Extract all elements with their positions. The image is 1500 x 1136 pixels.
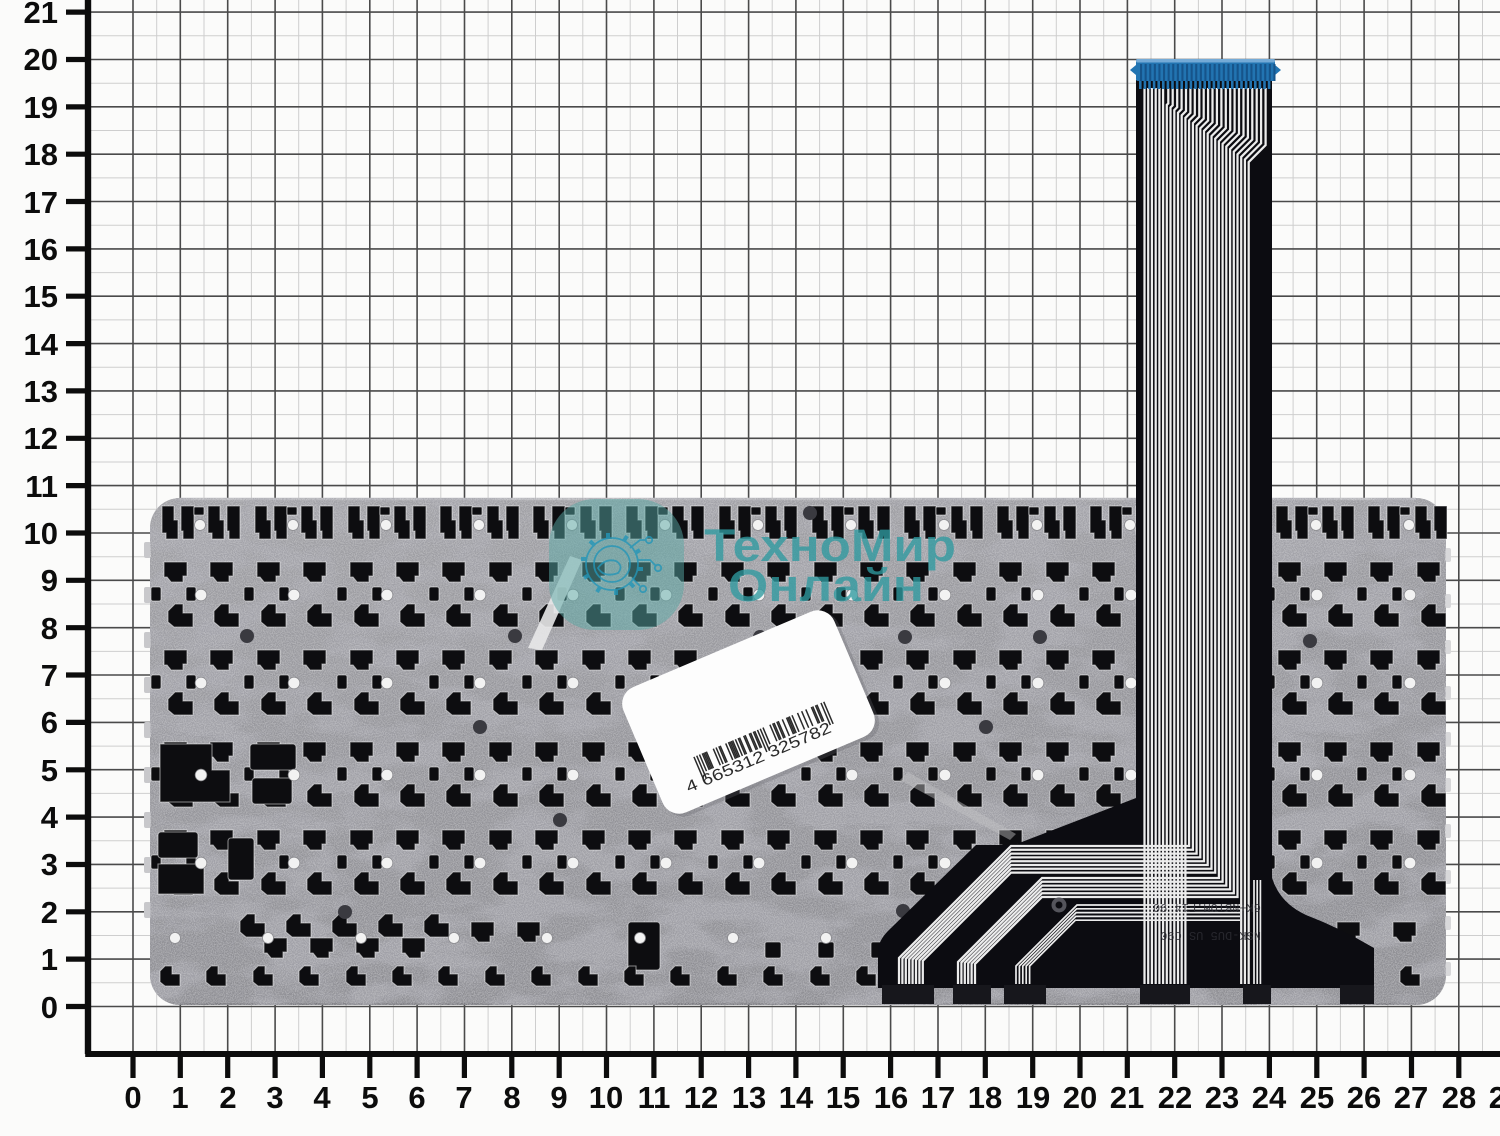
svg-text:20: 20 bbox=[24, 42, 58, 77]
svg-text:25: 25 bbox=[1300, 1080, 1334, 1115]
svg-text:18: 18 bbox=[968, 1080, 1002, 1115]
svg-text:6: 6 bbox=[408, 1080, 425, 1115]
svg-text:14: 14 bbox=[779, 1080, 814, 1115]
svg-text:6K+NBTOM.F14 90: 6K+NBTOM.F14 90 bbox=[1153, 900, 1261, 914]
svg-text:9: 9 bbox=[550, 1080, 567, 1115]
svg-text:19: 19 bbox=[1016, 1080, 1050, 1115]
svg-text:11: 11 bbox=[638, 1080, 671, 1115]
svg-text:12: 12 bbox=[684, 1080, 718, 1115]
svg-text:3: 3 bbox=[266, 1080, 283, 1115]
svg-text:10: 10 bbox=[24, 516, 58, 551]
svg-text:15: 15 bbox=[826, 1080, 860, 1115]
svg-text:2: 2 bbox=[219, 1080, 236, 1115]
svg-text:8: 8 bbox=[41, 611, 58, 646]
svg-text:24: 24 bbox=[1252, 1080, 1287, 1115]
svg-text:12: 12 bbox=[24, 421, 58, 456]
svg-text:7: 7 bbox=[41, 658, 58, 693]
svg-text:17: 17 bbox=[921, 1080, 955, 1115]
svg-text:19: 19 bbox=[24, 90, 58, 125]
svg-text:16: 16 bbox=[874, 1080, 908, 1115]
svg-text:27: 27 bbox=[1394, 1080, 1428, 1115]
svg-text:3: 3 bbox=[41, 847, 58, 882]
svg-text:5: 5 bbox=[41, 753, 58, 788]
svg-text:20: 20 bbox=[1063, 1080, 1097, 1115]
svg-text:7: 7 bbox=[455, 1080, 472, 1115]
svg-text:2: 2 bbox=[41, 895, 58, 930]
svg-text:10: 10 bbox=[589, 1080, 623, 1115]
svg-text:9: 9 bbox=[41, 563, 58, 598]
svg-text:1: 1 bbox=[41, 942, 58, 977]
svg-text:NSK-DU5 US C90: NSK-DU5 US C90 bbox=[1160, 928, 1261, 942]
svg-text:21: 21 bbox=[24, 0, 58, 30]
svg-text:18: 18 bbox=[24, 137, 58, 172]
svg-text:29: 29 bbox=[1489, 1080, 1500, 1115]
svg-text:1: 1 bbox=[171, 1080, 188, 1115]
svg-text:0: 0 bbox=[41, 990, 58, 1025]
svg-text:26: 26 bbox=[1347, 1080, 1381, 1115]
svg-text:17: 17 bbox=[24, 185, 58, 220]
svg-text:15: 15 bbox=[24, 279, 58, 314]
svg-text:5: 5 bbox=[361, 1080, 378, 1115]
svg-text:0: 0 bbox=[124, 1080, 141, 1115]
svg-text:4: 4 bbox=[313, 1080, 331, 1115]
svg-text:6: 6 bbox=[41, 705, 58, 740]
svg-text:11: 11 bbox=[25, 469, 58, 504]
svg-text:Онлайн: Онлайн bbox=[728, 560, 924, 611]
svg-text:13: 13 bbox=[24, 374, 58, 409]
svg-text:13: 13 bbox=[732, 1080, 766, 1115]
svg-text:16: 16 bbox=[24, 232, 58, 267]
svg-text:28: 28 bbox=[1442, 1080, 1476, 1115]
svg-text:22: 22 bbox=[1158, 1080, 1192, 1115]
svg-text:8: 8 bbox=[503, 1080, 520, 1115]
svg-text:23: 23 bbox=[1205, 1080, 1239, 1115]
svg-text:21: 21 bbox=[1110, 1080, 1144, 1115]
svg-text:4: 4 bbox=[41, 800, 59, 835]
svg-text:14: 14 bbox=[24, 327, 59, 362]
